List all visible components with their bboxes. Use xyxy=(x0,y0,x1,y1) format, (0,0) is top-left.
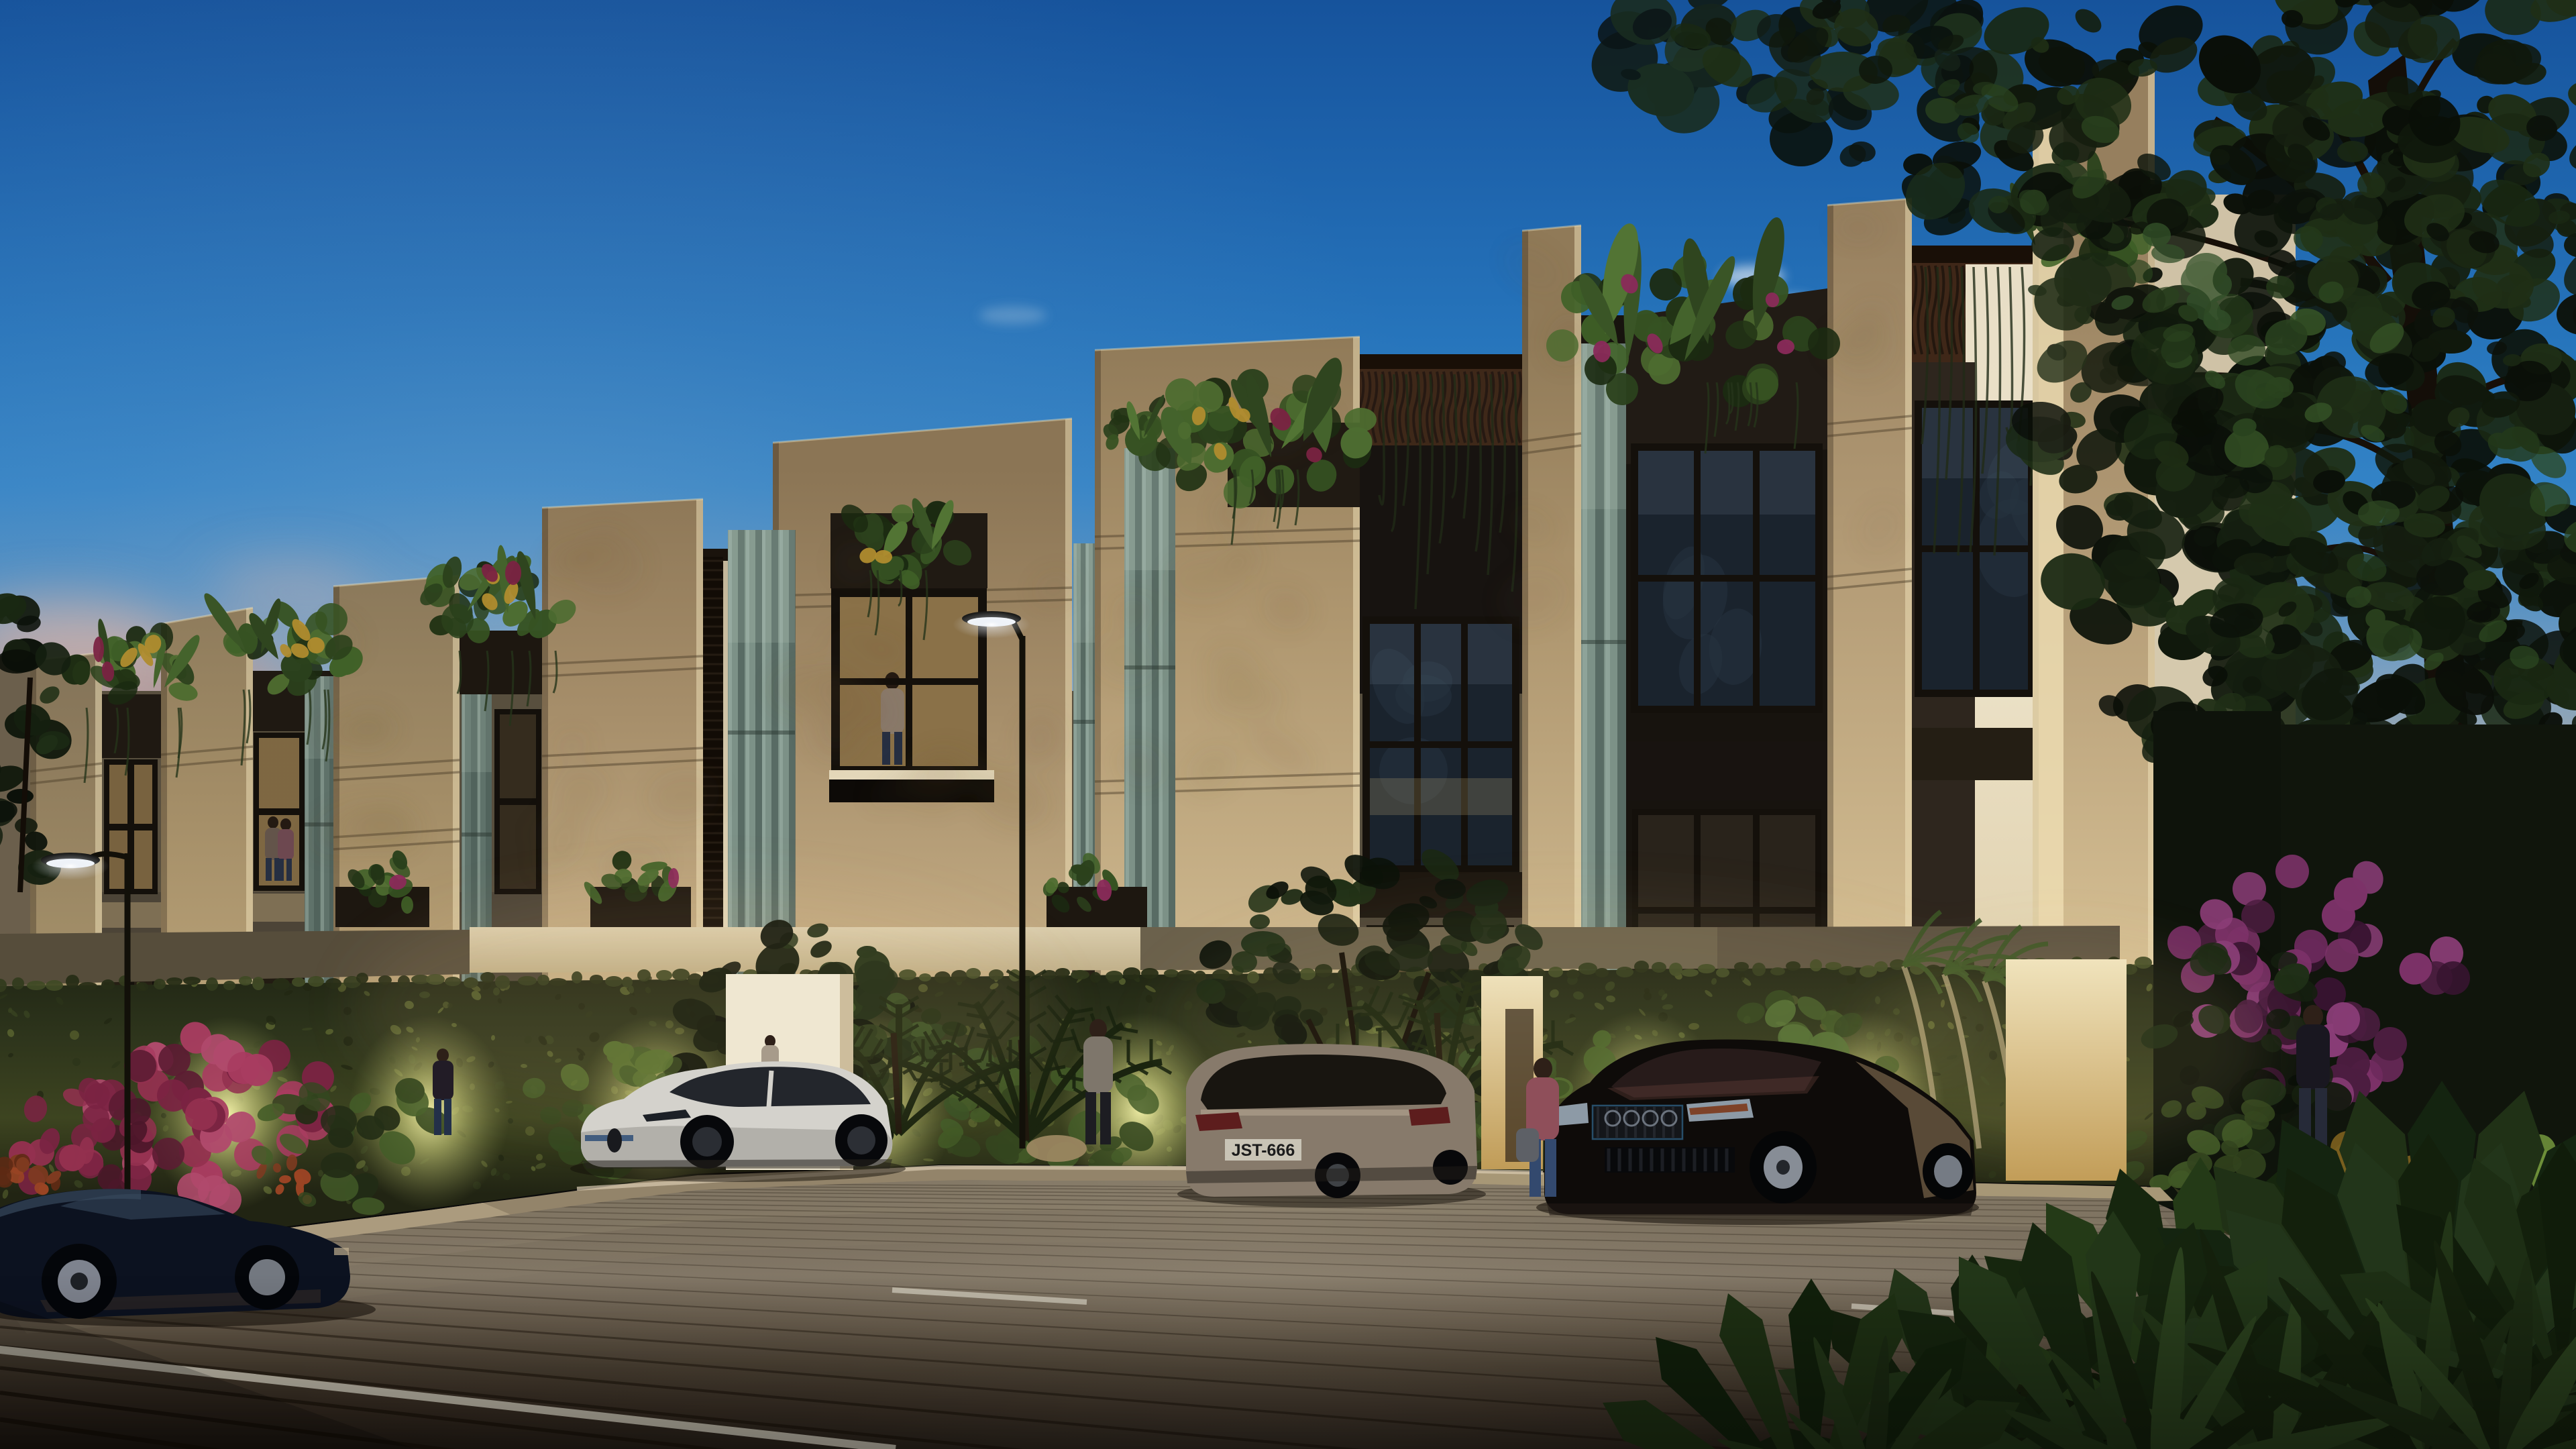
svg-text:JST-666: JST-666 xyxy=(1232,1141,1295,1160)
